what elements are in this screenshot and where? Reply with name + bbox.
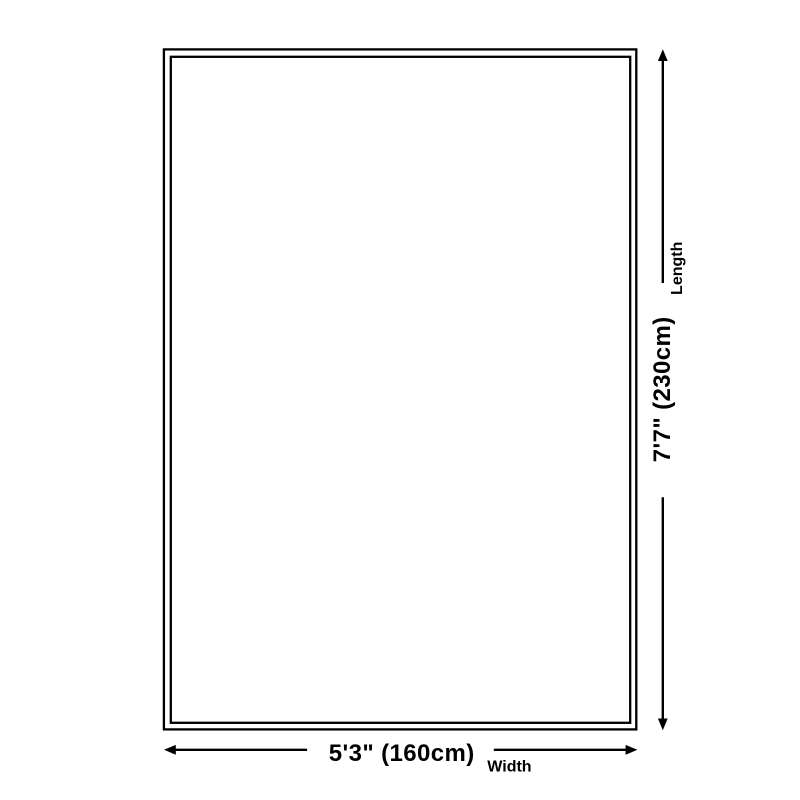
svg-text:5'3" (160cm): 5'3" (160cm) [329, 740, 475, 767]
svg-text:Width: Width [487, 759, 531, 776]
svg-text:7'7" (230cm): 7'7" (230cm) [649, 317, 676, 463]
svg-text:Length: Length [669, 242, 686, 295]
